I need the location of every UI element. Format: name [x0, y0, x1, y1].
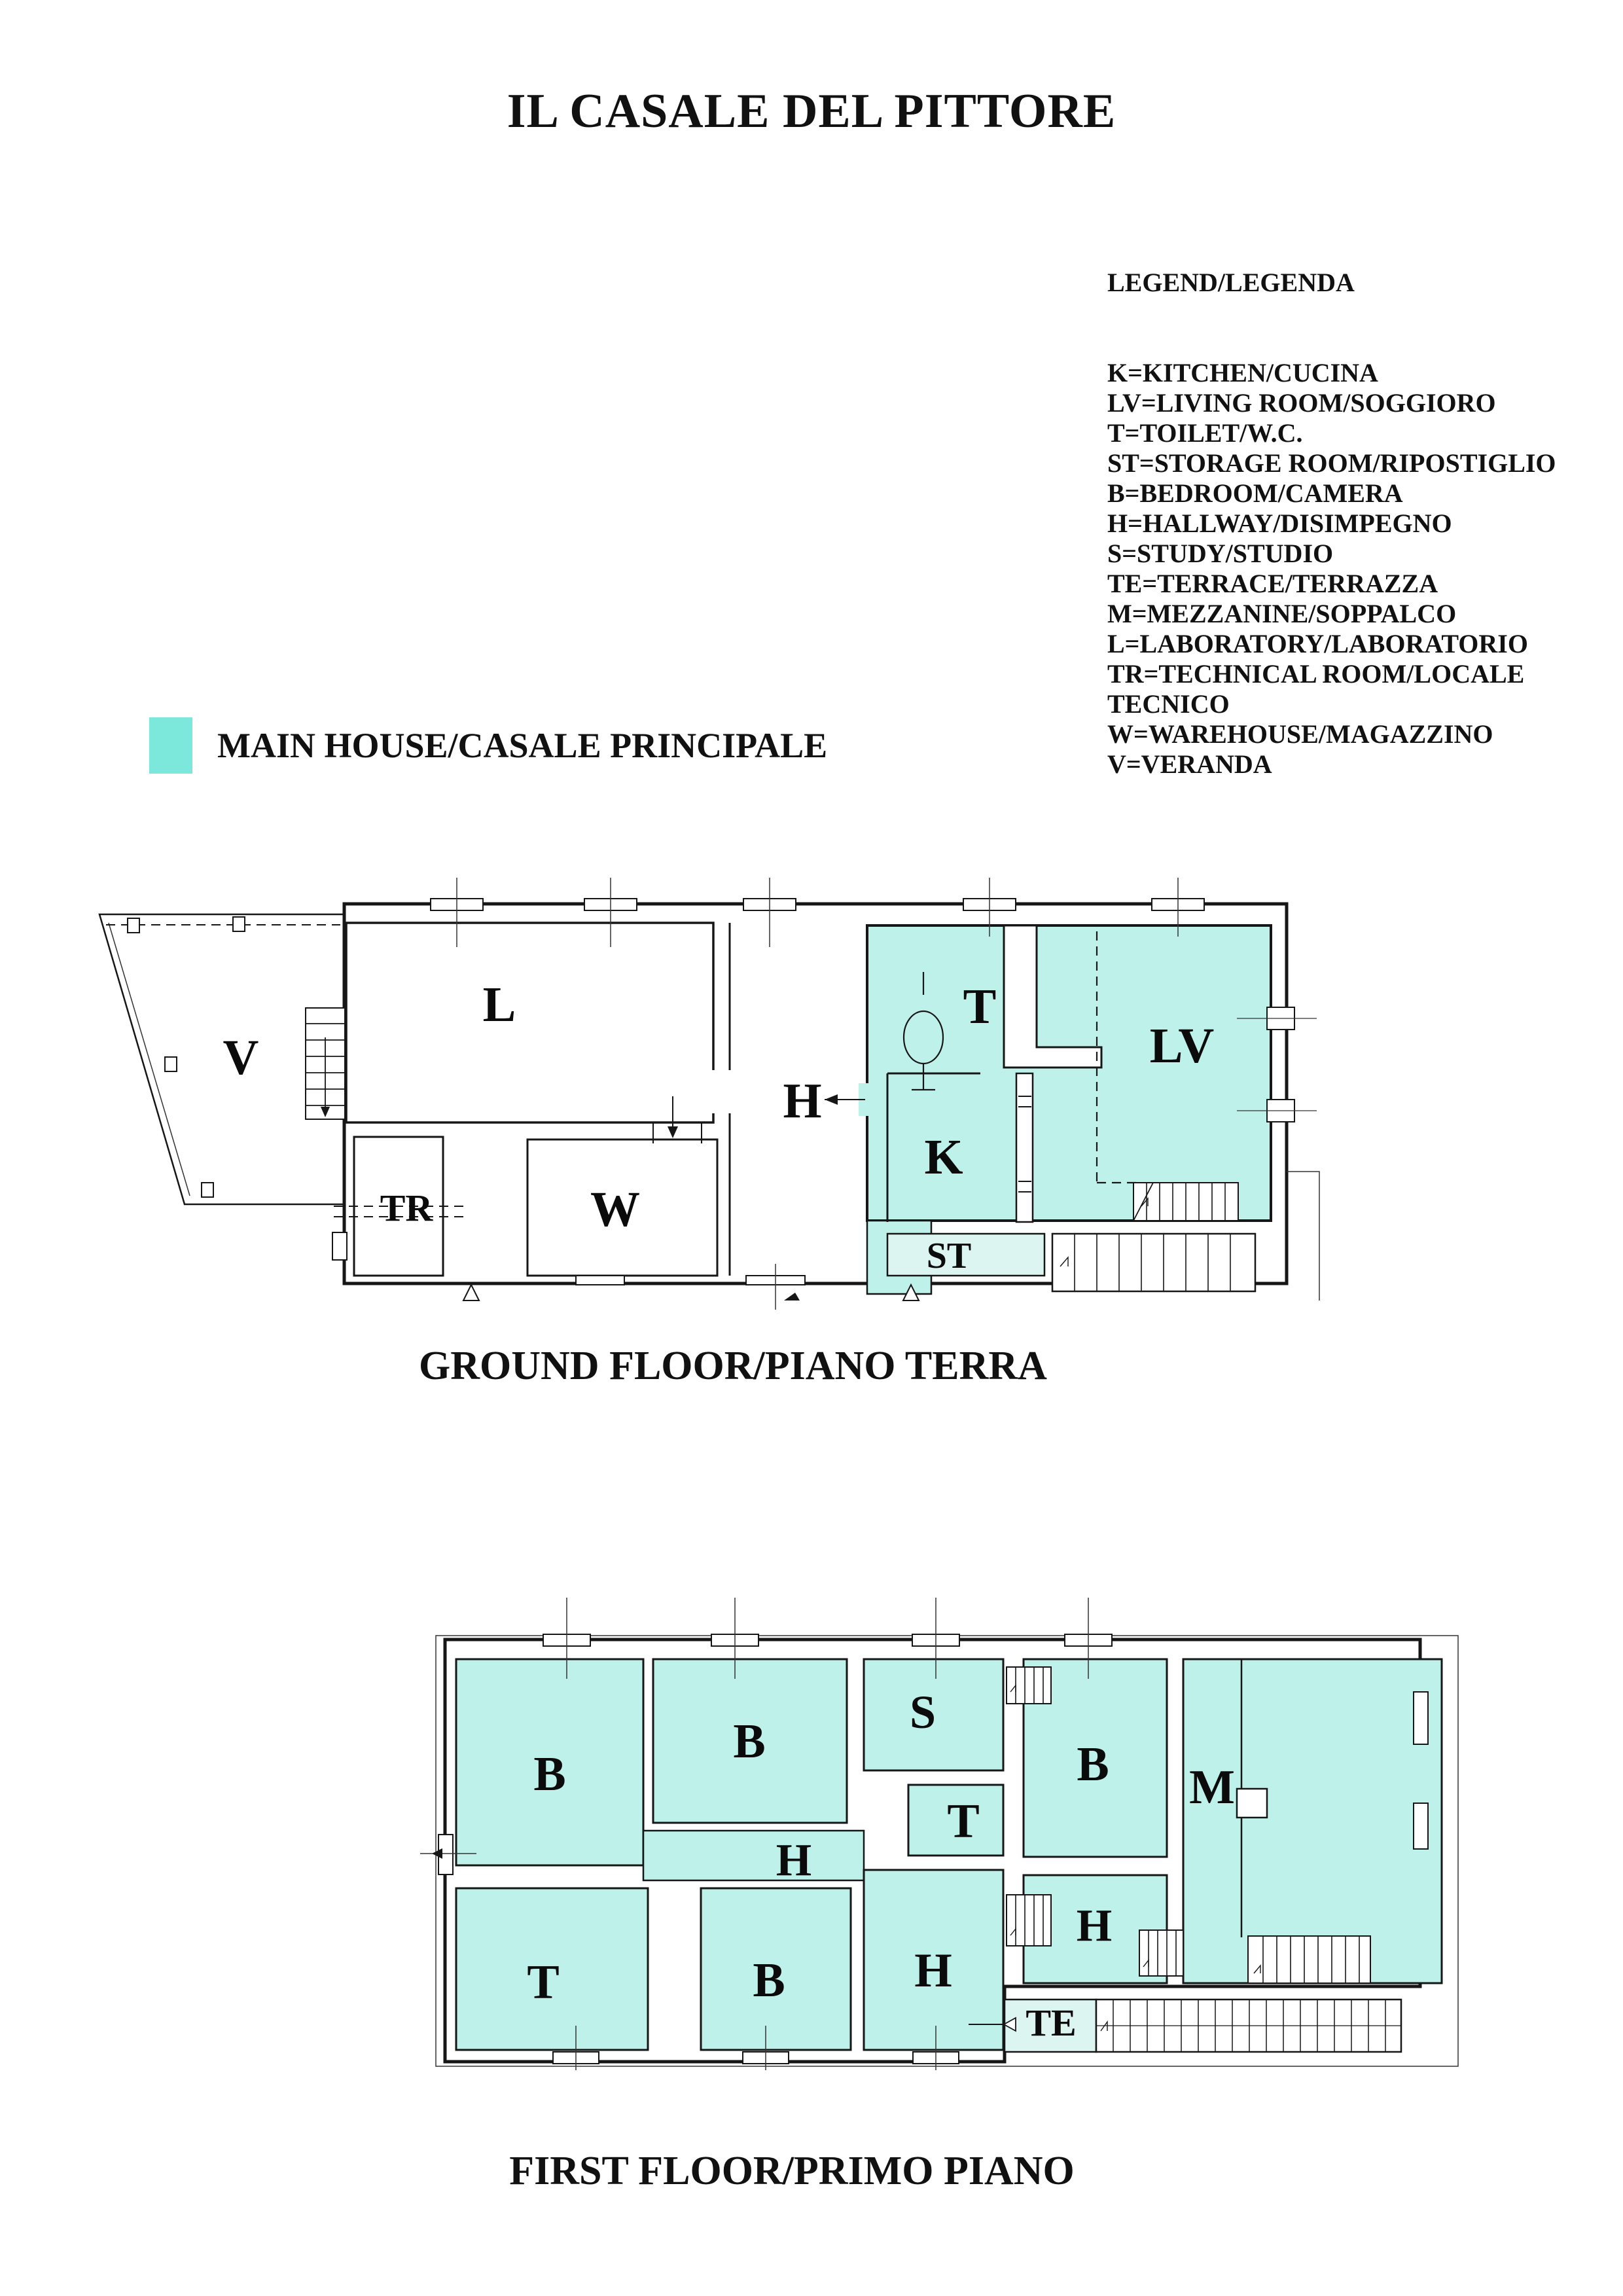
laboratory-room — [346, 923, 713, 1122]
stairs-right-small — [1139, 1930, 1183, 1976]
room-label-bedroom-3: B — [1077, 1738, 1109, 1791]
mezzanine-room — [1183, 1659, 1442, 1983]
room-label-hallway-2: H — [914, 1944, 952, 1998]
main-house-key: MAIN HOUSE/CASALE PRINCIPALE — [149, 717, 827, 774]
room-label-veranda: V — [223, 1030, 259, 1085]
hallway-1 — [643, 1831, 864, 1880]
legend-heading: LEGEND/LEGENDA — [1107, 267, 1618, 298]
room-label-terrace: TE — [1026, 2001, 1076, 2044]
legend-entry: B=BEDROOM/CAMERA — [1107, 478, 1618, 509]
room-label-kitchen: K — [924, 1130, 963, 1185]
legend-entry: K=KITCHEN/CUCINA — [1107, 358, 1618, 388]
room-label-bedroom-2: B — [733, 1715, 765, 1768]
living-room-stairs — [1133, 1183, 1238, 1221]
legend-entry: W=WAREHOUSE/MAGAZZINO — [1107, 719, 1618, 749]
first-floor-plan: B B S T B M H T B H H TE — [419, 1594, 1466, 2072]
room-label-living-room: LV — [1150, 1018, 1215, 1073]
veranda-post — [165, 1057, 177, 1071]
room-label-toilet: T — [963, 979, 997, 1034]
room-label-hallway-1: H — [776, 1835, 811, 1886]
first-floor-caption: FIRST FLOOR/PRIMO PIANO — [281, 2148, 1302, 2195]
legend-entry: LV=LIVING ROOM/SOGGIORO — [1107, 388, 1618, 418]
room-label-study: S — [910, 1686, 936, 1738]
veranda-stairs — [306, 1008, 345, 1119]
legend-entry: V=VERANDA — [1107, 749, 1618, 780]
room-label-bedroom-1: B — [533, 1748, 565, 1801]
legend-entry: TECNICO — [1107, 689, 1618, 719]
page-title: IL CASALE DEL PITTORE — [0, 84, 1623, 139]
external-stairs — [1052, 1234, 1255, 1291]
stairs-middle — [1007, 1895, 1051, 1946]
main-house-color-swatch — [149, 717, 192, 774]
room-label-toilet-2: T — [527, 1956, 559, 2009]
stairs-top — [1007, 1667, 1051, 1704]
main-house-key-label: MAIN HOUSE/CASALE PRINCIPALE — [217, 725, 827, 766]
legend-entry: M=MEZZANINE/SOPPALCO — [1107, 599, 1618, 629]
ground-floor-caption: GROUND FLOOR/PIANO TERRA — [223, 1343, 1243, 1390]
room-label-mezzanine: M — [1189, 1761, 1235, 1814]
room-label-bedroom-4: B — [753, 1954, 785, 2007]
room-label-hallway: H — [783, 1073, 821, 1128]
legend-entry: H=HALLWAY/DISIMPEGNO — [1107, 509, 1618, 539]
stairs-mezzanine — [1248, 1936, 1370, 1983]
legend-entry: T=TOILET/W.C. — [1107, 418, 1618, 448]
veranda-post — [202, 1183, 213, 1197]
plot-boundary-line — [1287, 1172, 1319, 1300]
room-label-storage: ST — [927, 1236, 972, 1276]
legend: LEGEND/LEGENDA K=KITCHEN/CUCINA LV=LIVIN… — [1107, 267, 1618, 780]
legend-entry: TR=TECHNICAL ROOM/LOCALE — [1107, 659, 1618, 689]
legend-entry: ST=STORAGE ROOM/RIPOSTIGLIO — [1107, 448, 1618, 478]
mezzanine-pillar — [1237, 1789, 1267, 1818]
room-label-hallway-3: H — [1077, 1901, 1112, 1951]
room-label-toilet-1: T — [947, 1795, 979, 1848]
room-label-laboratory: L — [483, 977, 516, 1032]
room-label-warehouse: W — [590, 1182, 640, 1237]
ground-floor-plan: V L H T K LV TR W ST — [92, 874, 1322, 1312]
veranda-post — [233, 917, 245, 931]
floor-plan-document: IL CASALE DEL PITTORE LEGEND/LEGENDA K=K… — [0, 0, 1623, 2296]
legend-entry: L=LABORATORY/LABORATORIO — [1107, 629, 1618, 659]
veranda-post — [128, 918, 139, 933]
legend-entry: S=STUDY/STUDIO — [1107, 539, 1618, 569]
room-label-technical-room: TR — [380, 1187, 434, 1229]
legend-entry: TE=TERRACE/TERRAZZA — [1107, 569, 1618, 599]
